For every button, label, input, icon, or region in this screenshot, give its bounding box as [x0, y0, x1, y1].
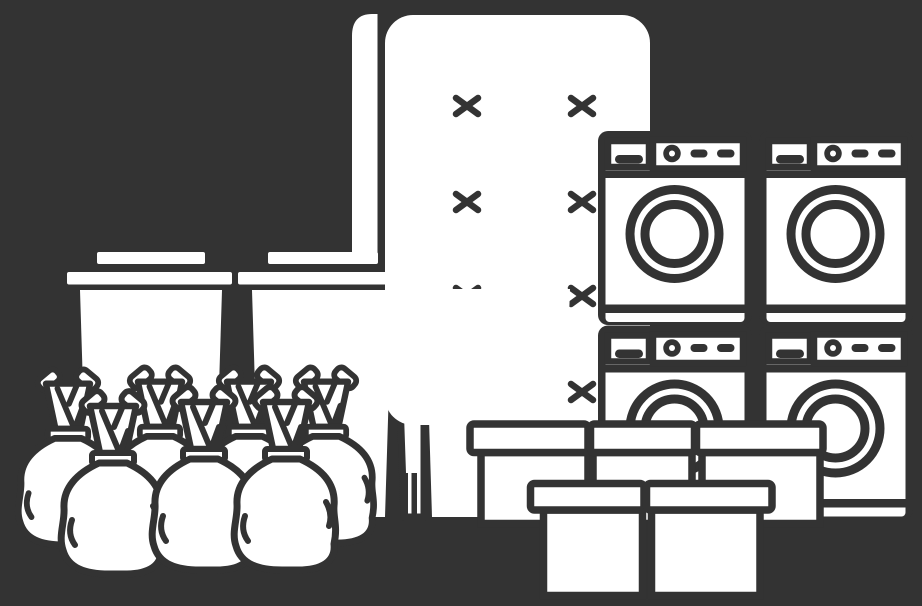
box-body: [652, 510, 761, 596]
box-lid: [647, 484, 773, 511]
mattress-back-top-sliver: [352, 14, 378, 262]
box-lid: [697, 424, 824, 453]
box-lid: [470, 424, 588, 453]
washing-machine-top-left: [598, 131, 752, 325]
box-lid: [591, 424, 695, 453]
rubbish-pile-canvas: [0, 0, 922, 606]
washing-machine-top-right: [759, 131, 913, 325]
bin-lid-handle: [97, 252, 205, 264]
box-lid: [531, 484, 645, 511]
bin-lid: [67, 272, 232, 285]
bin-lid: [238, 272, 403, 285]
bin-lid-handle: [268, 252, 378, 264]
cardboard-boxes-front-row: [531, 484, 773, 596]
mattress-piping-stripe: [403, 473, 409, 517]
cardboard-box-5: [647, 484, 773, 596]
box-body: [544, 510, 643, 596]
cardboard-box-4: [531, 484, 645, 596]
mattress-piping-stripe: [412, 473, 418, 517]
rubbish-bags-front-row: [61, 385, 335, 574]
bin-lid: [408, 271, 584, 285]
bin-lid-handle: [433, 250, 557, 264]
rubbish-pile-illustration: [0, 0, 922, 606]
